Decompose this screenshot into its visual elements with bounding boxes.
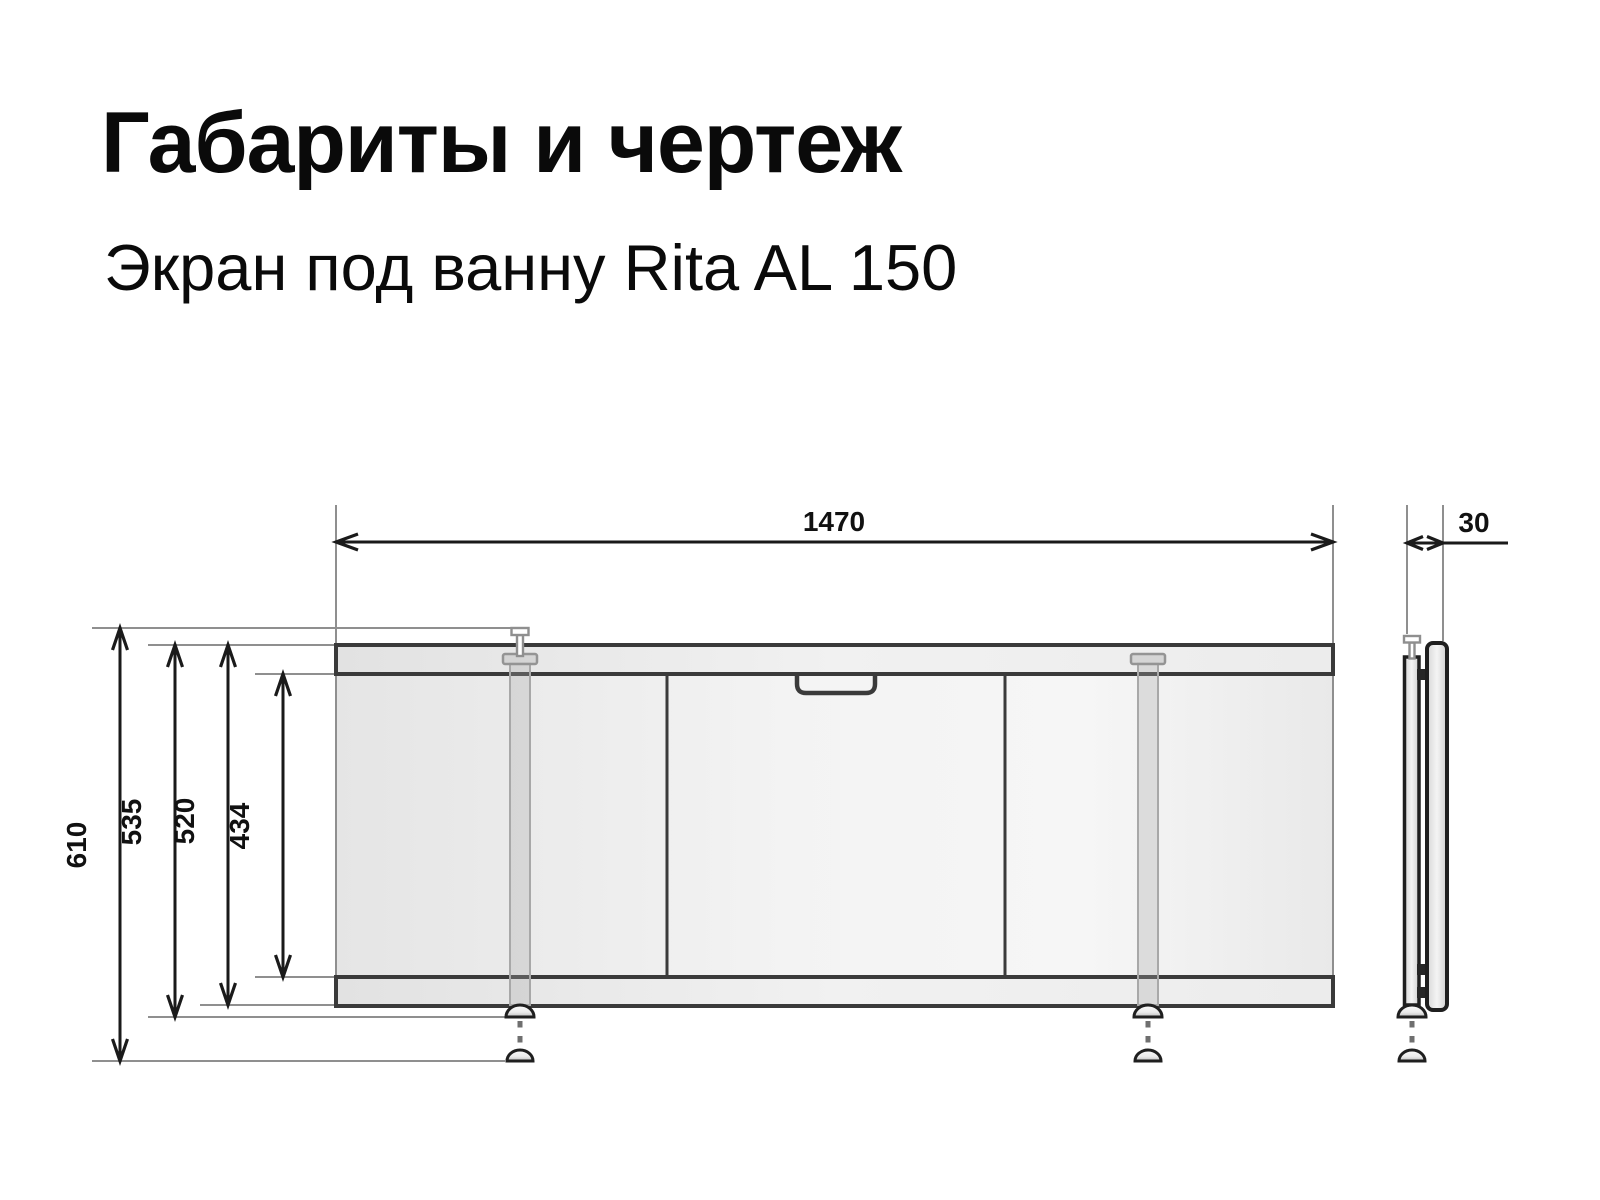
page: Габариты и чертеж Экран под ванну Rita A… bbox=[0, 0, 1600, 1200]
handle-cutout bbox=[797, 674, 875, 693]
side-front-slat bbox=[1405, 657, 1420, 1005]
dimension-profile-depth: 30 bbox=[1407, 507, 1508, 550]
dimension-overall-width: 1470 bbox=[336, 506, 1333, 550]
top-rail bbox=[336, 645, 1333, 674]
dimension-inner-opening-height: 434 bbox=[224, 674, 291, 977]
dim-label-overall-width: 1470 bbox=[803, 506, 865, 537]
side-adjuster-screw-head bbox=[1404, 636, 1420, 643]
technical-drawing: 1470 30 610 535 520 bbox=[0, 0, 1600, 1200]
side-adjuster-screw-stem bbox=[1410, 643, 1415, 659]
side-back-slat bbox=[1427, 643, 1447, 1010]
dim-label-panel-height: 520 bbox=[169, 798, 200, 845]
dim-label-height-with-feet: 535 bbox=[116, 799, 147, 846]
foot-dome-upper bbox=[1134, 1005, 1162, 1017]
front-view bbox=[336, 628, 1333, 1061]
leg-channel bbox=[510, 663, 530, 1005]
bottom-rail bbox=[336, 977, 1333, 1006]
foot-dome-lower bbox=[1135, 1050, 1161, 1061]
dim-label-profile-depth: 30 bbox=[1458, 507, 1489, 538]
adjuster-screw-stem bbox=[517, 635, 523, 656]
dim-label-max-height: 610 bbox=[61, 822, 92, 869]
adjuster-screw-head bbox=[512, 628, 529, 635]
foot-dome-upper bbox=[506, 1005, 534, 1017]
dim-label-inner-opening-height: 434 bbox=[224, 802, 255, 849]
side-foot-dome-lower bbox=[1399, 1050, 1425, 1061]
side-view bbox=[1398, 636, 1447, 1061]
side-foot-dome-upper bbox=[1398, 1005, 1426, 1017]
foot-dome-lower bbox=[507, 1050, 533, 1061]
leg-cap bbox=[1131, 654, 1165, 664]
leg-channel bbox=[1138, 663, 1158, 1005]
front-panel-body bbox=[336, 674, 1333, 977]
